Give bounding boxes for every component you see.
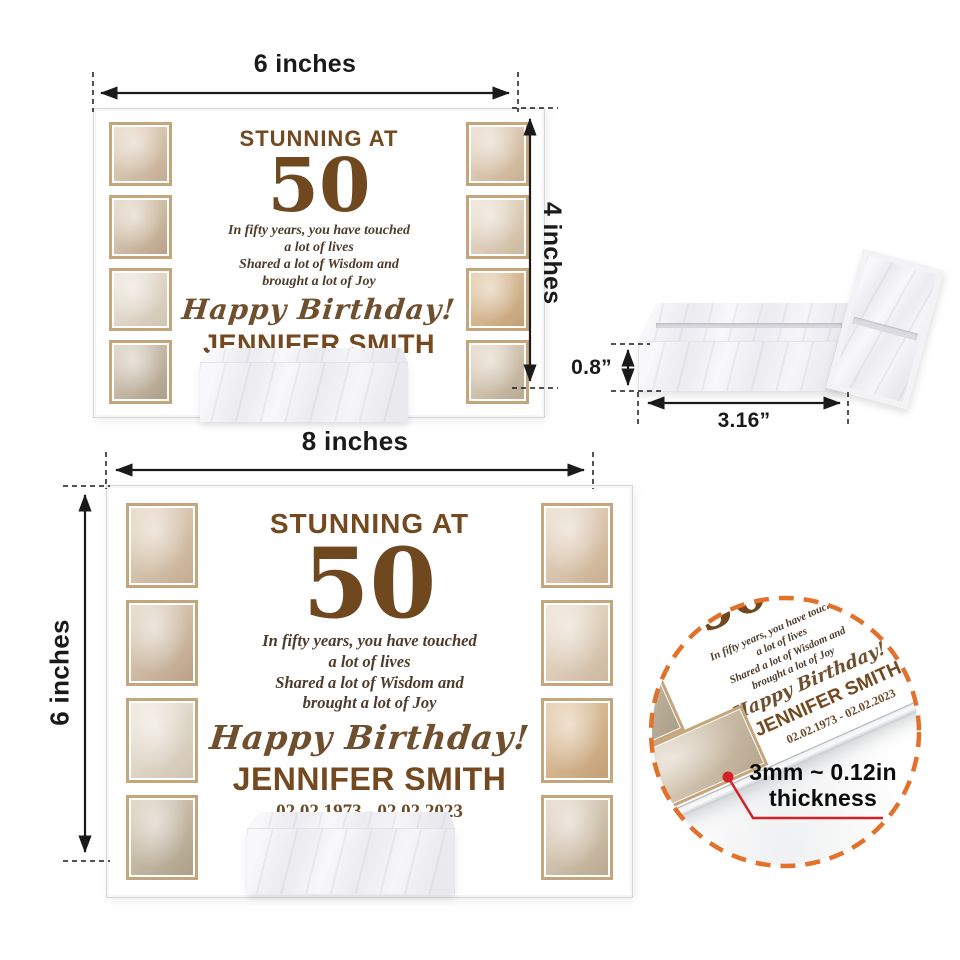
photo-column-left <box>109 122 172 404</box>
thickness-pointer <box>652 599 918 865</box>
display-base-top-face <box>638 303 862 341</box>
message-line-3: Shared a lot of Wisdom and <box>228 256 410 273</box>
photo-column-right <box>541 503 613 880</box>
base-slot <box>852 317 918 341</box>
photo-slot <box>109 122 172 186</box>
product-dimension-diagram: 6 inches 4 inches 8 inches 6 inches 0.8”… <box>0 0 960 960</box>
base-width-label: 3.16” <box>694 409 794 433</box>
small-plaque-height-label: 4 inches <box>537 168 566 338</box>
photo-slot <box>466 195 529 259</box>
plaque-recipient-name: JENNIFER SMITH <box>233 761 507 798</box>
photo-slot <box>466 122 529 186</box>
plaque-age-number: 50 <box>303 540 437 628</box>
stand-top-face <box>247 812 455 828</box>
detail-circle-content: 50 In fifty years, you have touched a lo… <box>652 599 918 865</box>
photo-column-left <box>126 503 198 880</box>
base-height-label: 0.8” <box>552 356 612 380</box>
message-line-3: Shared a lot of Wisdom and <box>262 673 476 694</box>
photo-slot <box>126 698 198 783</box>
photo-slot <box>541 795 613 880</box>
message-line-1: In fifty years, you have touched <box>262 631 476 652</box>
large-plaque-stand <box>247 812 455 893</box>
base-slot <box>656 323 842 328</box>
plaque-age-number: 50 <box>268 152 371 220</box>
photo-slot <box>541 600 613 685</box>
small-plaque-stand <box>200 348 408 421</box>
photo-slot <box>109 195 172 259</box>
plaque-message: In fifty years, you have touched a lot o… <box>228 222 410 290</box>
photo-slot <box>541 503 613 588</box>
photo-slot <box>541 698 613 783</box>
pointer-line <box>728 777 883 818</box>
message-line-2: a lot of lives <box>228 239 410 256</box>
photo-slot <box>109 268 172 332</box>
photo-slot <box>126 503 198 588</box>
thickness-detail-circle: 50 In fifty years, you have touched a lo… <box>645 592 925 872</box>
large-plaque-height-label: 6 inches <box>45 593 76 753</box>
small-plaque-width-label: 6 inches <box>200 50 410 79</box>
message-line-4: brought a lot of Joy <box>228 273 410 290</box>
photo-column-right <box>466 122 529 404</box>
stand-top-face <box>200 348 408 362</box>
display-base-front-face <box>638 341 850 392</box>
display-base-tilted <box>826 249 944 410</box>
stand-front-face <box>200 362 408 422</box>
plaque-greeting: Happy Birthday! <box>208 718 532 757</box>
photo-slot <box>126 600 198 685</box>
photo-slot <box>126 795 198 880</box>
plaque-greeting: Happy Birthday! <box>181 293 458 326</box>
stand-front-face <box>247 828 455 894</box>
message-line-4: brought a lot of Joy <box>262 693 476 714</box>
message-line-2: a lot of lives <box>262 652 476 673</box>
photo-slot <box>466 340 529 404</box>
photo-slot <box>466 268 529 332</box>
plaque-message: In fifty years, you have touched a lot o… <box>262 631 476 714</box>
large-plaque-width-label: 8 inches <box>250 426 460 457</box>
message-line-1: In fifty years, you have touched <box>228 222 410 239</box>
photo-slot <box>109 340 172 404</box>
